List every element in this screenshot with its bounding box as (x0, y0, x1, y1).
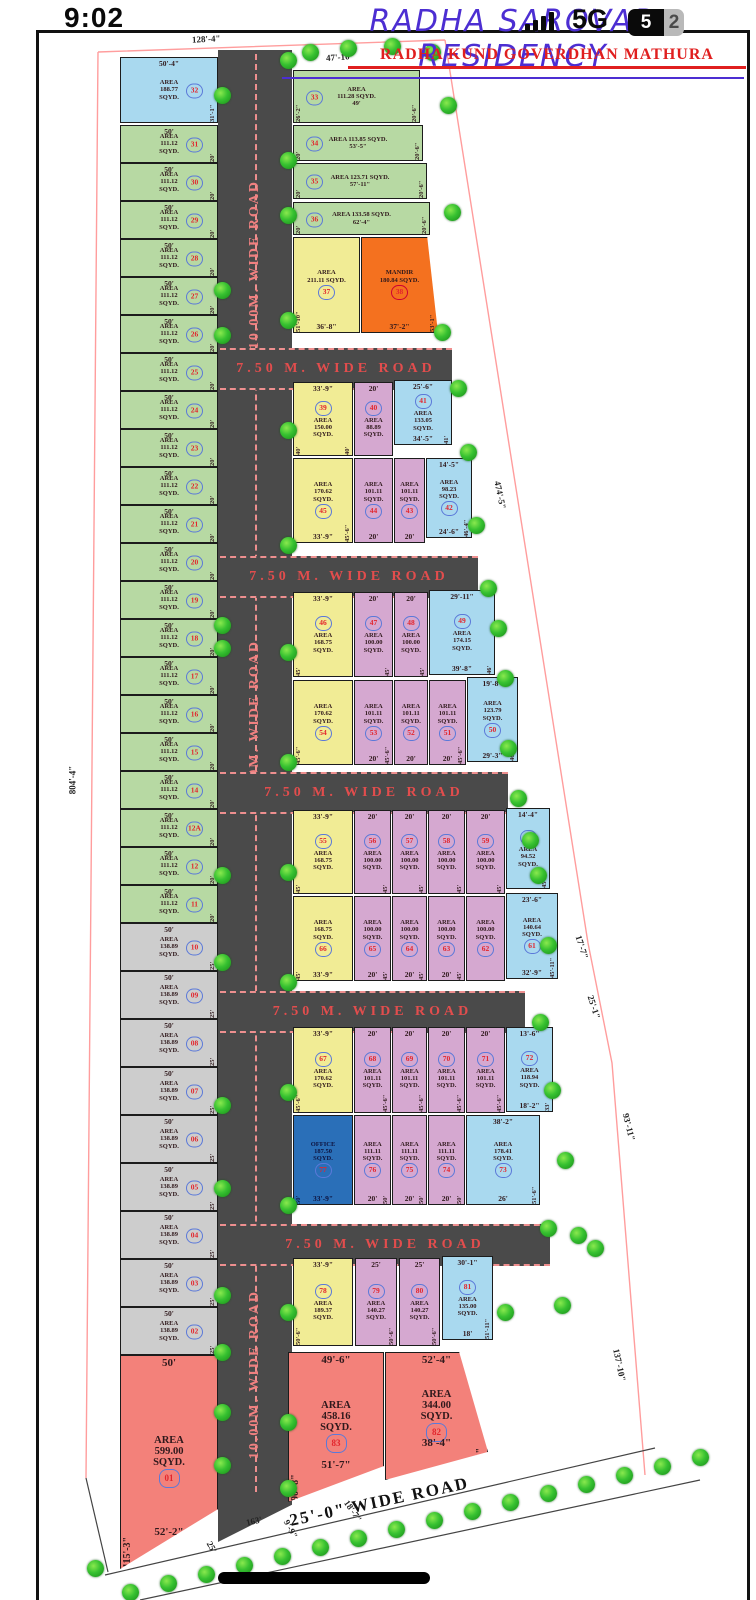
plot-area-text: AREA101.11SQYD. (364, 481, 384, 502)
tree-icon (480, 580, 497, 597)
plot-35: AREA 123.71 SQYD.57'-11"3520'20'-6" (293, 163, 427, 199)
plot-area-text: AREA140.64SQYD. (522, 917, 542, 938)
plot-number-badge: 15 (186, 746, 203, 761)
plot-number-badge: 03 (186, 1277, 203, 1292)
plot-area-text: AREA101.11SQYD. (400, 1068, 420, 1089)
plot-dim-left: 50'-6" (295, 1259, 302, 1345)
plot-69: 20'69AREA101.11SQYD.45'-6" (392, 1027, 427, 1113)
battery-percent-sub: 2 (664, 9, 684, 36)
tree-icon (510, 790, 527, 807)
plot-dim-top: 50' (121, 1069, 217, 1078)
plot-dim-right: 20' (209, 126, 216, 162)
plot-dim-right: 20'-6" (414, 126, 421, 160)
tree-icon (280, 1304, 297, 1321)
battery-icon: 5 2 (628, 9, 684, 36)
boundary-dim-label: 804'-4" (67, 766, 77, 795)
plot-number-badge: 57 (401, 834, 418, 849)
plot-area-text: AREA111.12SQYD. (159, 589, 179, 610)
plot-72: 13'-6"72AREA118.94SQYD.18'-2"33' (506, 1027, 553, 1112)
plot-number-badge: 55 (315, 834, 332, 849)
plot-area-text: AREA168.75SQYD. (313, 632, 333, 653)
plot-number-badge: 67 (315, 1052, 332, 1067)
plot-17: 50'AREA111.12SQYD.1720' (120, 657, 218, 695)
plot-area-text: AREA111.12SQYD. (159, 855, 179, 876)
plot-number-badge: 73 (495, 1163, 512, 1178)
tree-icon (280, 644, 297, 661)
plot-73: 38'-2"AREA178.41SQYD.7326'51'-6" (466, 1115, 540, 1205)
plot-number-badge: 42 (441, 501, 458, 516)
plot-dim-right: 20' (209, 240, 216, 276)
plot-dim-right: 20' (209, 354, 216, 390)
tree-icon (532, 1014, 549, 1031)
plot-number-badge: 11 (186, 898, 203, 913)
plot-number-badge: 65 (364, 942, 381, 957)
plot-dim-right: 40' (344, 383, 351, 455)
plot-12: 50'AREA111.12SQYD.1220' (120, 847, 218, 885)
plot-area-text: AREA138.89SQYD. (159, 1128, 179, 1149)
vertical-road-label: 10.00M. WIDE ROAD (247, 1290, 263, 1459)
plot-area-text: AREA138.89SQYD. (159, 1272, 179, 1293)
plot-dim-top: 33'-9" (294, 594, 352, 603)
plot-dim-top: 33'-9" (294, 812, 352, 821)
plot-number-badge: 47 (365, 616, 382, 631)
plot-40: 20'40AREA88.89SQYD. (354, 382, 393, 456)
plot-area-text: AREA101.11SQYD. (438, 703, 458, 724)
tree-icon (444, 204, 461, 221)
tree-icon (214, 1097, 231, 1114)
plot-area-text: AREA178.41SQYD. (493, 1141, 513, 1162)
plot-number-badge: 14 (186, 784, 203, 799)
plot-57: 20'57AREA100.00SQYD.45' (392, 810, 427, 894)
plot-number-badge: 66 (315, 942, 332, 957)
tree-icon (214, 640, 231, 657)
plot-number-badge: 80 (411, 1284, 428, 1299)
plot-dim-right: 20' (209, 772, 216, 808)
plot-number-badge: 81 (459, 1280, 476, 1295)
tree-icon (554, 1297, 571, 1314)
plot-area-text: AREA100.00SQYD. (364, 632, 384, 653)
plot-number-badge: 22 (186, 480, 203, 495)
plot-area-text: AREA101.11SQYD. (400, 481, 420, 502)
plot-area-text: AREA100.00SQYD. (437, 919, 457, 940)
plot-58: 20'58AREA100.00SQYD.45' (428, 810, 465, 894)
plot-02: 50'AREA138.89SQYD.0225' (120, 1307, 218, 1355)
plot-dim-bottom: 20' (395, 754, 427, 763)
plot-dim-right: 51'-6" (531, 1116, 538, 1204)
plot-39: 33'-9"39AREA150.00SQYD.40'40' (293, 382, 353, 456)
plot-66: AREA168.75SQYD.6633'-9"45' (293, 896, 353, 981)
tree-icon (280, 207, 297, 224)
tree-icon (214, 1287, 231, 1304)
plot-36: AREA 133.58 SQYD.62'-4"3620'20'-6" (293, 202, 430, 235)
plot-dim-top: 50' (121, 1117, 217, 1126)
tree-icon (214, 617, 231, 634)
plot-dim-right: 20' (209, 658, 216, 694)
tree-icon (540, 1485, 557, 1502)
plot-number-badge: 12 (186, 860, 203, 875)
tree-icon (540, 937, 557, 954)
plot-dim-top: 33'-9" (294, 1260, 352, 1269)
plot-dim-right: 20' (209, 430, 216, 466)
tree-icon (540, 1220, 557, 1237)
plot-dim-right: 45'-6" (344, 459, 351, 542)
plot-number-badge: 01 (159, 1469, 180, 1488)
plot-number-badge: 12A (186, 822, 203, 837)
tree-icon (280, 754, 297, 771)
plot-number-badge: 51 (439, 726, 456, 741)
plot-dim-right: 20' (209, 886, 216, 922)
plot-number-badge: 29 (186, 214, 203, 229)
plot-71: 20'71AREA101.11SQYD.45'-6" (466, 1027, 505, 1113)
plot-76: AREA111.11SQYD.7620'50' (354, 1115, 391, 1205)
tree-icon (280, 312, 297, 329)
plot-area-text: AREA111.12SQYD. (159, 551, 179, 572)
plot-dim-right: 20' (209, 392, 216, 428)
plot-number-badge: 33 (306, 90, 323, 105)
plot-area-text: AREA101.11SQYD. (401, 703, 421, 724)
plot-09: 50'AREA138.89SQYD.0925' (120, 971, 218, 1019)
plot-dim-right: 45'-6" (456, 1028, 463, 1112)
plot-dim-top: 50' (121, 973, 217, 982)
battery-percent-main: 5 (628, 9, 664, 36)
plot-number-badge: 02 (186, 1325, 203, 1340)
tree-icon (500, 740, 517, 757)
plot-area-text: AREA111.12SQYD. (159, 209, 179, 230)
plot-area-text: MANDIR180.84 SQYD. (380, 269, 419, 283)
plot-dim-right: 45'-6" (496, 1028, 503, 1112)
plot-37: AREA211.11 SQYD.3736'-8"51'-10" (293, 237, 360, 333)
tree-icon (522, 832, 539, 849)
tree-icon (160, 1575, 177, 1592)
plot-22: 50'AREA111.12SQYD.2220' (120, 467, 218, 505)
tree-icon (557, 1152, 574, 1169)
plot-dim-bottom: 20' (395, 532, 424, 541)
tree-icon (214, 954, 231, 971)
plot-number-badge: 78 (315, 1284, 332, 1299)
plot-number-badge: 71 (477, 1052, 494, 1067)
plot-04: 50'AREA138.89SQYD.0425' (120, 1211, 218, 1259)
plot-number-badge: 74 (438, 1163, 455, 1178)
plot-area-text: AREA100.00SQYD. (437, 850, 457, 871)
tree-icon (280, 1414, 297, 1431)
plot-number-badge: 61 (524, 939, 541, 954)
plot-10: 50'AREA138.89SQYD.1025' (120, 923, 218, 971)
plot-dim-bottom: 20' (355, 532, 392, 541)
plot-number-badge: 39 (315, 401, 332, 416)
plot-area-text: AREA111.12SQYD. (159, 171, 179, 192)
plot-38: MANDIR180.84 SQYD.3837'-2"53'-1" (361, 237, 438, 333)
plot-dim-right: 45' (456, 811, 463, 893)
plot-area-text: AREA111.28 SQYD.49' (337, 86, 375, 107)
plot-42: 14'-5"AREA98.23SQYD.4224'-6"46'-4" (426, 458, 472, 538)
plot-47: 20'47AREA100.00SQYD.45' (354, 592, 393, 677)
plot-dim-left: 40' (295, 383, 302, 455)
tree-icon (280, 1084, 297, 1101)
tree-icon (570, 1227, 587, 1244)
plot-number-badge: 26 (186, 328, 203, 343)
plot-number-badge: 38 (391, 285, 408, 300)
plot-area-text: AREA101.11SQYD. (363, 1068, 383, 1089)
plot-61: 23'-6"AREA140.64SQYD.6132'-9"45'-11" (506, 893, 558, 979)
plot-number-badge: 79 (368, 1284, 385, 1299)
plot-number-badge: 21 (186, 518, 203, 533)
plot-number-badge: 28 (186, 252, 203, 267)
plot-dim-right: 20' (209, 810, 216, 846)
boundary-dim-label: 128'-4" (192, 33, 221, 44)
signal-icon (525, 12, 554, 31)
plot-area-text: AREA111.12SQYD. (159, 437, 179, 458)
plot-number-badge: 64 (401, 942, 418, 957)
tree-icon (280, 537, 297, 554)
status-time: 9:02 (64, 2, 124, 34)
plot-number-badge: 52 (403, 726, 420, 741)
plot-area-text: AREA111.11SQYD. (400, 1141, 420, 1162)
plot-number-badge: 62 (477, 942, 494, 957)
plot-number-badge: 24 (186, 404, 203, 419)
road-label: 7.50 M. WIDE ROAD (249, 569, 449, 585)
plot-area-text: AREA98.23SQYD. (439, 479, 459, 500)
plot-area-text: AREA168.75SQYD. (313, 919, 333, 940)
plot-dim-top: 49'-6" (289, 1354, 383, 1366)
plot-dim-right: 45' (382, 811, 389, 893)
plot-dim-left: 45'-6" (295, 1028, 302, 1112)
plot-dim-left: 50' (295, 1116, 302, 1204)
plot-64: AREA100.00SQYD.6420'45' (392, 896, 427, 981)
plot-area-text: AREA150.00SQYD. (313, 417, 333, 438)
plot-area-text: AREA111.12SQYD. (159, 399, 179, 420)
plot-dim-top: 50' (121, 1309, 217, 1318)
tree-icon (490, 620, 507, 637)
plot-number-badge: 16 (186, 708, 203, 723)
plot-dim-right: 50'-6" (431, 1259, 438, 1345)
plot-area-text: AREA111.12SQYD. (159, 133, 179, 154)
plot-19: 50'AREA111.12SQYD.1920' (120, 581, 218, 619)
plot-27: 50'AREA111.12SQYD.2720' (120, 277, 218, 315)
plot-26: 50'AREA111.12SQYD.2620' (120, 315, 218, 353)
plot-dim-top: 50' (121, 1165, 217, 1174)
plot-70: 20'70AREA101.11SQYD.45'-6" (428, 1027, 465, 1113)
plot-74: AREA111.11SQYD.7420'50' (428, 1115, 465, 1205)
plot-area-text: AREA123.79SQYD. (483, 700, 503, 721)
plot-area-text: AREA111.11SQYD. (363, 1141, 383, 1162)
plot-number-badge: 40 (365, 401, 382, 416)
plot-dim-right: 25' (209, 1212, 216, 1258)
tree-icon (616, 1467, 633, 1484)
plot-dim-top: 50' (121, 1261, 217, 1270)
plot-56: 20'56AREA100.00SQYD.45' (354, 810, 391, 894)
plot-dim-left: 45'-6" (295, 681, 302, 764)
plot-dim-right: 45' (384, 593, 391, 676)
plot-number-badge: 18 (186, 632, 203, 647)
plot-number-badge: 59 (477, 834, 494, 849)
tree-icon (87, 1560, 104, 1577)
plot-number-badge: 23 (186, 442, 203, 457)
plot-area-text: AREA111.12SQYD. (159, 475, 179, 496)
plot-number-badge: 75 (401, 1163, 418, 1178)
plot-dim-top: 50' (121, 1357, 217, 1369)
plot-81: 30'-1"81AREA135.00SQYD.18'51'-11" (442, 1256, 493, 1340)
plot-area-text: AREA111.12SQYD. (159, 285, 179, 306)
plot-number-badge: 44 (365, 504, 382, 519)
plot-28: 50'AREA111.12SQYD.2820' (120, 239, 218, 277)
plot-number-badge: 31 (186, 138, 203, 153)
tree-icon (280, 1197, 297, 1214)
plot-area-text: AREA138.89SQYD. (159, 936, 179, 957)
plot-area-text: AREA174.15SQYD. (452, 630, 472, 651)
plot-number-badge: 07 (186, 1085, 203, 1100)
plot-number-badge: 53 (365, 726, 382, 741)
plot-number-badge: 37 (318, 285, 335, 300)
tree-icon (214, 867, 231, 884)
tree-icon (692, 1449, 709, 1466)
plot-number-badge: 68 (364, 1052, 381, 1067)
tree-icon (350, 1530, 367, 1547)
plot-dim-right: 25' (209, 972, 216, 1018)
plot-dim-top: 20' (355, 384, 392, 393)
plot-area-text: AREA211.11 SQYD. (307, 269, 345, 283)
plot-dim-bottom: 51'-7" (289, 1459, 383, 1471)
tree-icon (198, 1566, 215, 1583)
tree-icon (388, 1521, 405, 1538)
tree-icon (497, 670, 514, 687)
plot-number-badge: 77 (315, 1163, 332, 1178)
plot-number-badge: 17 (186, 670, 203, 685)
plot-dim-right: 45' (496, 811, 503, 893)
horizontal-road-3: 7.50 M. WIDE ROAD (220, 772, 508, 814)
plot-number-badge: 36 (306, 212, 323, 227)
plot-dim-top: 50' (121, 925, 217, 934)
plot-05: 50'AREA138.89SQYD.0525' (120, 1163, 218, 1211)
plot-dim-bottom: 36'-8" (294, 322, 359, 331)
plot-number-badge: 19 (186, 594, 203, 609)
plot-number-badge: 50 (484, 723, 501, 738)
plot-06: 50'AREA138.89SQYD.0625' (120, 1115, 218, 1163)
plot-23: 50'AREA111.12SQYD.2320' (120, 429, 218, 467)
plot-dim-right: 50' (382, 1116, 389, 1204)
plot-dim-top: 38'-2" (467, 1117, 539, 1126)
plot-area-text: AREA458.16SQYD. (320, 1400, 352, 1434)
plot-dim-right: 20' (209, 202, 216, 238)
plot-16: 50'AREA111.12SQYD.1620' (120, 695, 218, 733)
tree-icon (587, 1240, 604, 1257)
plot-dim-right: 20' (209, 278, 216, 314)
plot-number-badge: 25 (186, 366, 203, 381)
tree-icon (654, 1458, 671, 1475)
plot-number-badge: 09 (186, 989, 203, 1004)
plot-area-text: AREA188.77SQYD. (159, 79, 179, 100)
plot-dim-left: 20' (295, 164, 302, 198)
plot-number-badge: 34 (306, 137, 323, 152)
plot-59: 20'59AREA100.00SQYD.45' (466, 810, 505, 894)
tree-icon (214, 282, 231, 299)
plot-area-text: AREA135.00SQYD. (458, 1296, 478, 1317)
plot-18: 50'AREA111.12SQYD.1820' (120, 619, 218, 657)
plot-area-text: AREA 133.58 SQYD.62'-4" (332, 211, 391, 225)
plot-area-text: AREA100.00SQYD. (363, 850, 383, 871)
plot-area-text: AREA168.75SQYD. (313, 850, 333, 871)
plot-area-text: AREA138.89SQYD. (159, 1320, 179, 1341)
plot-area-text: AREA111.12SQYD. (159, 513, 179, 534)
plot-number-badge: 63 (438, 942, 455, 957)
tree-icon (274, 1548, 291, 1565)
plot-46: 33'-9"46AREA168.75SQYD.45' (293, 592, 353, 677)
plot-68: 20'68AREA101.11SQYD.45'-6" (354, 1027, 391, 1113)
plot-number-badge: 30 (186, 176, 203, 191)
plot-number-badge: 69 (401, 1052, 418, 1067)
plot-41: 25'-6"41AREA133.05SQYD.34'-5"41' (394, 380, 452, 445)
tree-icon (214, 1457, 231, 1474)
plot-dim-right: 20'-6" (421, 203, 428, 234)
plot-dim-right: 25' (209, 1020, 216, 1066)
plot-07: 50'AREA138.89SQYD.0725' (120, 1067, 218, 1115)
plot-dim-right: 20' (209, 544, 216, 580)
plot-24: 50'AREA111.12SQYD.2420' (120, 391, 218, 429)
plot-77: OFFICE187.50SQYD.7733'-9"50' (293, 1115, 353, 1205)
tree-icon (312, 1539, 329, 1556)
plot-area-text: AREA138.89SQYD. (159, 1080, 179, 1101)
plot-area-text: AREA 123.71 SQYD.57'-11" (331, 174, 390, 188)
plot-11: 50'AREA111.12SQYD.1120' (120, 885, 218, 923)
tree-icon (280, 974, 297, 991)
plot-area-text: AREA133.05SQYD. (413, 410, 433, 431)
plot-number-badge: 05 (186, 1181, 203, 1196)
plot-dim-right: 20' (209, 696, 216, 732)
plot-area-text: AREA111.12SQYD. (159, 779, 179, 800)
plot-number-badge: 49 (454, 614, 471, 629)
plot-dim-bottom: 39'-8" (430, 664, 494, 673)
plot-area-text: AREA138.89SQYD. (159, 1032, 179, 1053)
plot-area-text: AREA344.00SQYD. (421, 1389, 453, 1423)
tree-icon (440, 97, 457, 114)
plot-dim-right: 51'-11" (484, 1257, 491, 1339)
tree-icon (502, 1494, 519, 1511)
home-indicator[interactable] (218, 1572, 430, 1584)
plot-43: AREA101.11SQYD.4320' (394, 458, 425, 543)
plot-dim-right: 45'-6" (457, 681, 464, 764)
plot-number-badge: 70 (438, 1052, 455, 1067)
plot-area-text: AREA599.00SQYD. (153, 1435, 185, 1469)
tree-icon (544, 1082, 561, 1099)
plot-dim-right: 45'-6" (382, 1028, 389, 1112)
road-label: 7.50 M. WIDE ROAD (236, 361, 436, 377)
plot-area-text: AREA140.27SQYD. (410, 1300, 430, 1321)
plot-area-text: AREA111.12SQYD. (159, 627, 179, 648)
plot-area-text: AREA101.11SQYD. (364, 703, 384, 724)
plot-dim-left: 45' (295, 811, 302, 893)
plot-45: AREA170.62SQYD.4533'-9"45'-6" (293, 458, 353, 543)
tree-icon (468, 517, 485, 534)
tree-icon (122, 1584, 139, 1600)
plot-20: 50'AREA111.12SQYD.2020' (120, 543, 218, 581)
plot-dim-right: 20' (209, 582, 216, 618)
plot-area-text: AREA100.00SQYD. (400, 919, 420, 940)
plot-dim-left: 45' (295, 897, 302, 980)
plot-area-text: AREA189.37SQYD. (313, 1300, 333, 1321)
plot-number-badge: 35 (306, 175, 323, 190)
plot-34: AREA 113.85 SQYD.53'-5"3420'20'-6" (293, 125, 423, 161)
plot-62: AREA100.00SQYD.62 (466, 896, 505, 981)
plot-area-text: AREA100.00SQYD. (401, 632, 421, 653)
plot-area-text: AREA170.62SQYD. (313, 1068, 333, 1089)
plot-number-badge: 10 (186, 941, 203, 956)
plot-area-text: AREA100.00SQYD. (363, 919, 383, 940)
plot-dim-left: 115'-3" (122, 1356, 133, 1568)
plot-dim-top: 50'-4" (121, 59, 217, 68)
plot-dim-bottom: 33'-9" (294, 970, 352, 979)
plot-area-text: AREA170.62SQYD. (313, 481, 333, 502)
tree-icon (214, 1344, 231, 1361)
site-plan: 10.00M. WIDE ROAD 10.00M. WIDE ROAD 10.0… (0, 0, 756, 1600)
